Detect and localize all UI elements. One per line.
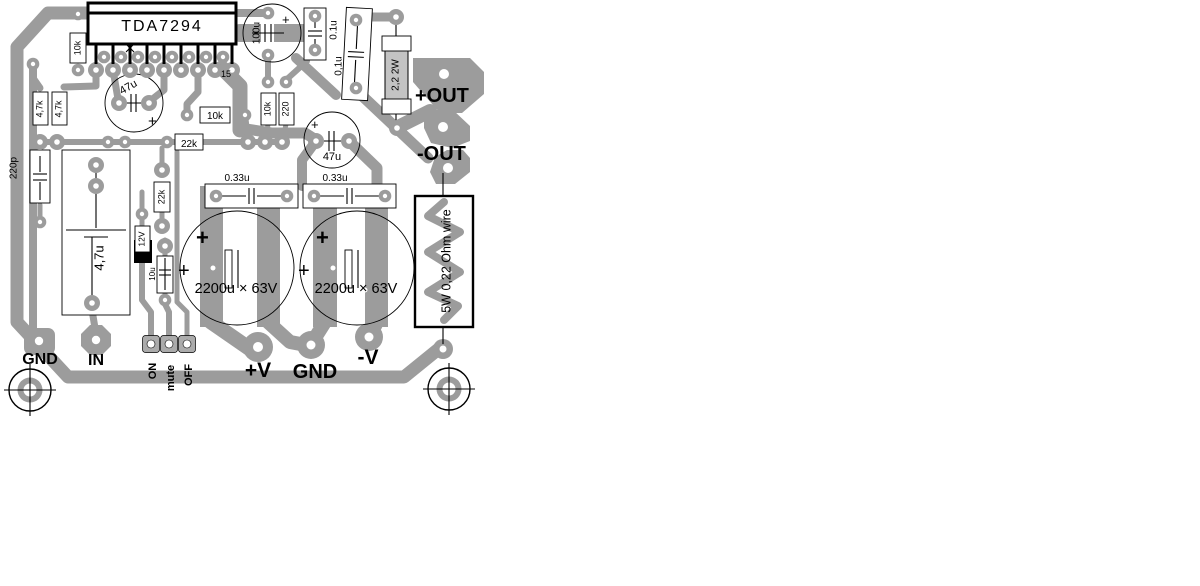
r-10k-v-label: 10k [262, 101, 272, 116]
gnd-in-label: GND [22, 351, 58, 368]
pcb-layout-image: TDA7294 15 10k 4,7k 4,7k 220p 4,7u 47u +… [0, 0, 1200, 586]
input-label: IN [88, 352, 104, 369]
r-4k7-b-label: 4,7k [53, 100, 63, 118]
r-10k-pin-label: 10k [72, 40, 82, 55]
c-2200-b-plus: + [316, 225, 329, 250]
c-2200-a-plus: + [196, 225, 209, 250]
c-033-b-label: 0.33u [322, 173, 347, 184]
pin15-label: 15 [221, 69, 231, 79]
c-2200-a-plus2: + [178, 260, 190, 282]
mute-label: mute [165, 365, 177, 391]
on-label: ON [147, 363, 159, 380]
c-01u-b-label: 0,1u [334, 56, 345, 75]
ic-tda7294 [88, 3, 240, 78]
c-2200-a-label: 2200u × 63V [195, 281, 278, 297]
c-220p-label: 220p [9, 156, 20, 179]
out-neg-label: -OUT [417, 143, 466, 165]
d-12v-label: 12V [136, 231, 146, 246]
c-033-a-label: 0.33u [224, 173, 249, 184]
c-100u-label: 100u [252, 22, 263, 44]
c-01u-a-label: 0.1u [329, 20, 340, 39]
r-4k7-a-label: 4,7k [34, 100, 44, 118]
out-pos-label: +OUT [415, 85, 469, 107]
r-wire-label: 5W 0,22 Ohm wire [439, 209, 453, 313]
switch-pads [143, 336, 196, 353]
film-cap-value: 4,7u [91, 245, 106, 270]
pcb-board-diagram: TDA7294 15 10k 4,7k 4,7k 220p 4,7u 47u +… [0, 0, 1200, 586]
c-2200-b-plus2: + [298, 260, 310, 282]
c-2200-b-label: 2200u × 63V [315, 281, 398, 297]
c-47u-mid-label: 47u [323, 151, 341, 163]
gnd-pwr-label: GND [293, 361, 337, 383]
c-47u-top-plus: + [148, 113, 157, 130]
r-22k-v-label: 22k [156, 189, 166, 204]
v-pos-label: +V [245, 359, 271, 382]
r-10k-h-label: 10k [207, 111, 224, 122]
v-neg-label: -V [358, 346, 379, 369]
c-10u-label: 10u [148, 267, 157, 280]
r-22k-h-label: 22k [181, 139, 198, 150]
c-47u-mid-plus: + [311, 117, 319, 132]
off-label: OFF [183, 364, 195, 386]
r-2r2-label: 2,2 2W [391, 59, 402, 91]
ic-label: TDA7294 [121, 18, 203, 35]
c-100u-plus: + [282, 12, 290, 27]
r-220-v-label: 220 [280, 101, 290, 116]
